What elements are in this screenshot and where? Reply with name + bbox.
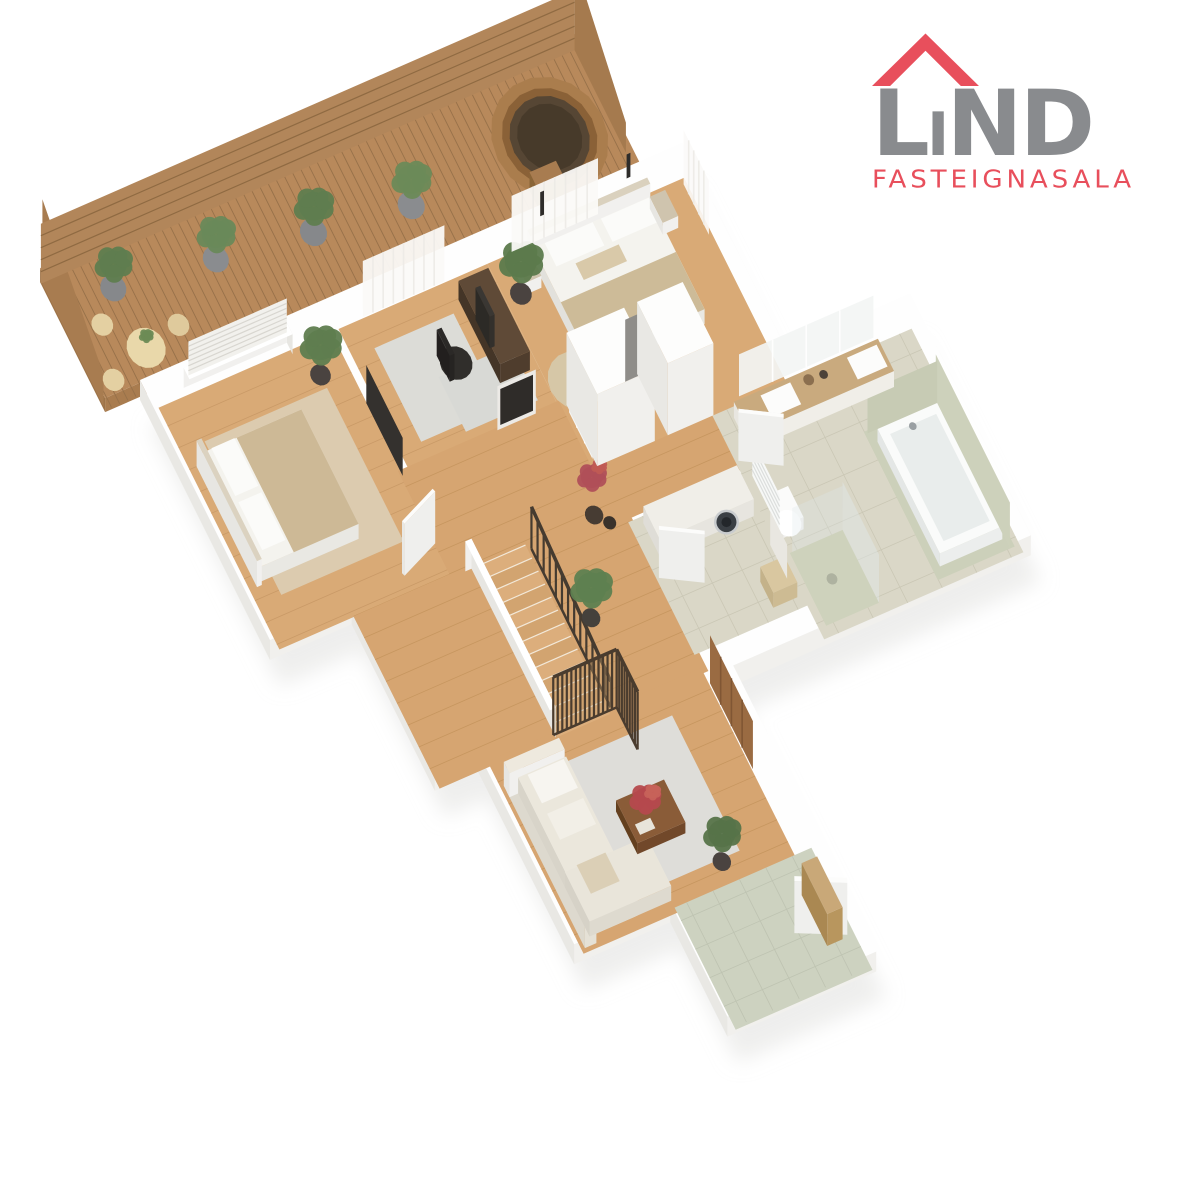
laundry-door [659,526,705,583]
lind-logo: LIND FASTEIGNASALA [872,14,1144,198]
wall-sconce [540,191,544,217]
wardrobe-open-shelf [625,314,638,382]
dryer [714,510,739,535]
real-estate-floorplan-image: LIND FASTEIGNASALA [0,0,1200,1200]
logo-brand-text: LIND [872,72,1092,177]
logo-subtitle-text: FASTEIGNASALA [872,165,1135,194]
bathroom-door [738,409,783,466]
wall-sconce [627,153,631,179]
